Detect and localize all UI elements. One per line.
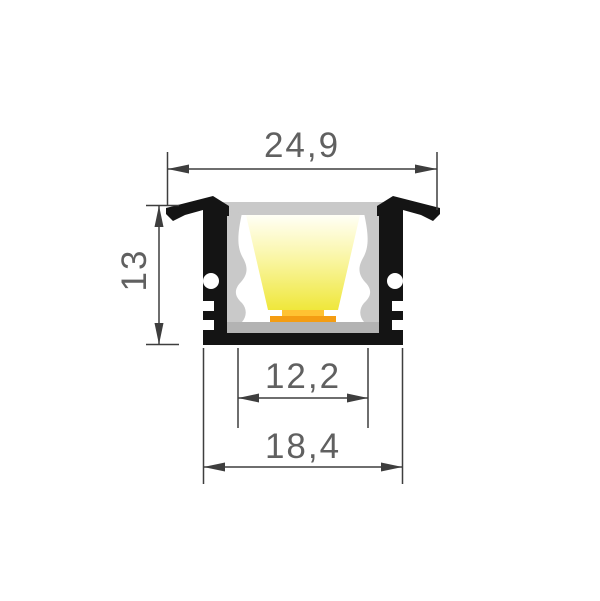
left-tooth-notch-2 [202,320,214,330]
channel-floor [227,322,379,334]
right-tooth-notch-2 [392,320,404,330]
profile-left-wall [203,205,227,334]
dim-top-width-label: 24,9 [264,126,340,165]
drawing-canvas: 24,9 13 12,2 18,4 [0,0,600,601]
profile-right-wall [379,205,403,334]
diffuser-top-band [223,202,383,215]
led-chip [282,310,324,316]
right-round-notch [387,273,403,289]
left-round-notch [203,273,219,289]
right-tooth-notch-1 [392,301,404,311]
left-tooth-notch-1 [202,301,214,311]
dim-height-label: 13 [115,249,154,292]
profile-base [203,333,403,345]
led-strip-pcb [270,316,336,323]
dim-bottom-width-label: 18,4 [265,427,341,466]
dim-inner-width-label: 12,2 [265,357,341,396]
led-profile-cross-section-drawing: 24,9 13 12,2 18,4 [0,0,600,601]
